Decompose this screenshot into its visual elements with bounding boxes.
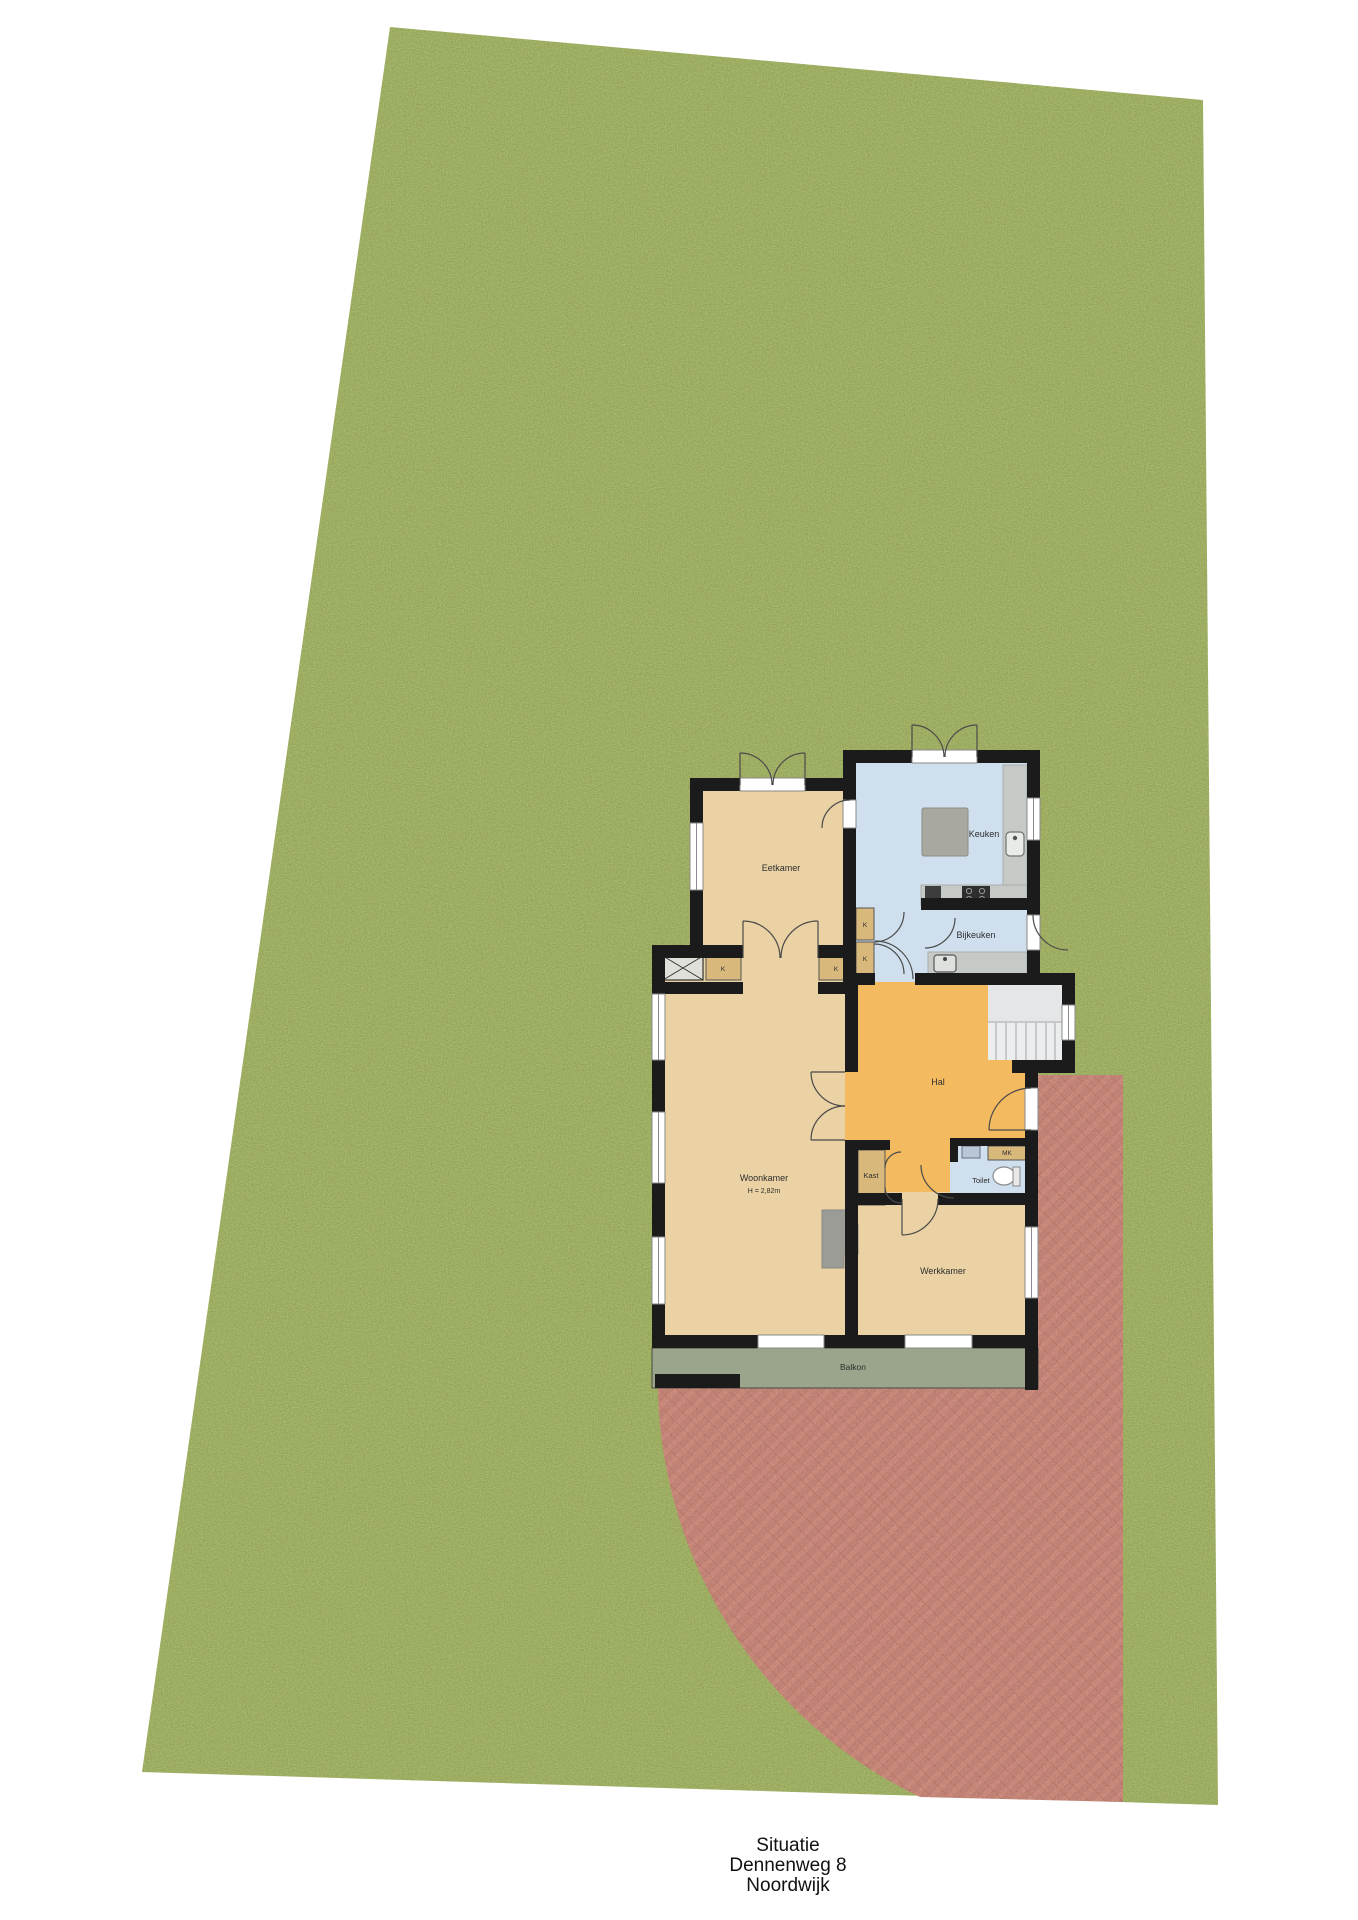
title-block: Situatie Dennenweg 8 Noordwijk: [729, 1836, 846, 1896]
room-woonkamer: [652, 982, 858, 1348]
sill-front-door: [1025, 1088, 1038, 1130]
kitchen-sink: [1006, 832, 1024, 856]
plan-type-label: Situatie: [729, 1836, 846, 1856]
address-label: Dennenweg 8: [729, 1856, 846, 1876]
balkon-label: Balkon: [840, 1362, 866, 1372]
stairs-landing: [988, 985, 1062, 1022]
label-k-band-right: K: [834, 966, 839, 973]
label-kast: Kast: [863, 1171, 879, 1180]
label-hal: Hal: [931, 1077, 945, 1087]
label-keuken: Keuken: [969, 829, 1000, 839]
window-stairs-right: [1062, 1005, 1075, 1040]
label-woonkamer: Woonkamer: [740, 1173, 788, 1183]
kitchen-faucet: [1013, 836, 1017, 840]
label-eetkamer: Eetkamer: [762, 863, 801, 873]
window-woonkamer-left-1: [652, 994, 665, 1060]
label-meterkast: MK: [1002, 1150, 1012, 1157]
label-k-lobby-bottom: K: [863, 956, 868, 963]
window-woonkamer-left-2: [652, 1112, 665, 1183]
kitchen-island: [922, 808, 968, 856]
balkon-strip: Balkon: [652, 1348, 1038, 1388]
balkon-west-wall: [655, 1374, 740, 1388]
bijkeuken-faucet: [943, 957, 947, 961]
toilet-tank: [1013, 1167, 1020, 1186]
label-toilet: Toilet: [972, 1176, 990, 1185]
sill-woonkamer-balkon-door: [758, 1335, 824, 1348]
label-k-band-left: K: [721, 966, 726, 973]
toilet-bowl: [993, 1167, 1015, 1185]
label-bijkeuken: Bijkeuken: [956, 930, 995, 940]
label-k-lobby-top: K: [863, 922, 868, 929]
sill-werkkamer-balkon-door: [905, 1335, 972, 1348]
label-woonkamer-height: H = 2,82m: [748, 1188, 781, 1195]
bijkeuken-fixtures: [928, 952, 1027, 975]
sill-keuken-inner-door: [843, 800, 856, 828]
city-label: Noordwijk: [729, 1876, 846, 1896]
window-woonkamer-left-3: [652, 1237, 665, 1304]
label-werkkamer: Werkkamer: [920, 1266, 966, 1276]
toilet-sink: [962, 1146, 980, 1158]
window-keuken-right: [1027, 798, 1040, 840]
chimney-box: [663, 956, 703, 980]
staircase: [988, 985, 1062, 1060]
situatie-floorplan-canvas: Balkon: [0, 0, 1358, 1920]
window-eetkamer-left: [690, 823, 703, 890]
window-werkkamer-right: [1025, 1227, 1038, 1298]
situatie-drawing: Balkon: [0, 0, 1358, 1920]
